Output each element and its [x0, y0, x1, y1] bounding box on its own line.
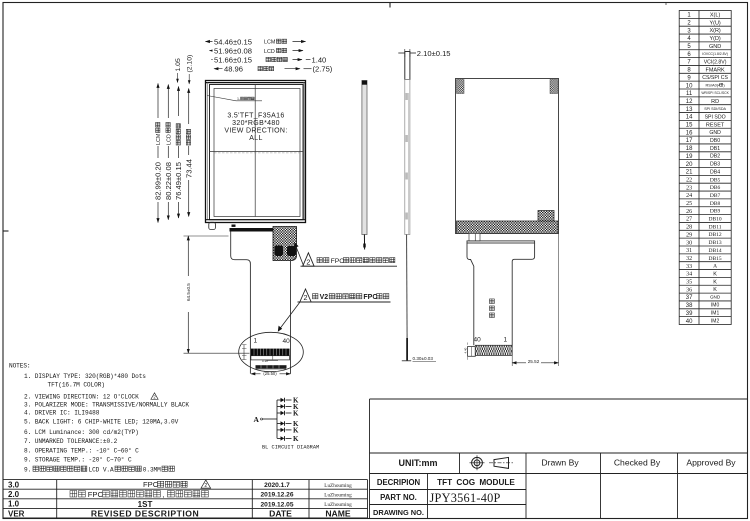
svg-text:X(L): X(L) — [710, 12, 721, 18]
svg-text:K: K — [713, 279, 717, 285]
svg-text:40: 40 — [474, 337, 482, 344]
svg-text:18: 18 — [686, 146, 693, 152]
svg-text:7. UNMARKED TOLERANCE:±0.2: 7. UNMARKED TOLERANCE:±0.2 — [24, 438, 118, 445]
svg-text:38: 38 — [686, 303, 693, 309]
svg-text:1. DISPLAY TYPE: 320(RGB)*48: 1. DISPLAY TYPE: 320(RGB)*480 Dots — [24, 373, 146, 380]
svg-text:V2: V2 — [320, 294, 329, 301]
svg-text:2019.12.05: 2019.12.05 — [260, 501, 293, 508]
svg-text:DB6: DB6 — [710, 185, 721, 191]
svg-text:24: 24 — [686, 193, 692, 199]
svg-text:GND: GND — [709, 130, 721, 136]
svg-text:30: 30 — [686, 240, 692, 246]
svg-text:28: 28 — [686, 225, 692, 231]
svg-text:1ST: 1ST — [138, 500, 153, 509]
svg-text:LCD: LCD — [264, 49, 275, 55]
svg-text:3.0: 3.0 — [8, 481, 20, 490]
svg-text:LCD V.A: LCD V.A — [89, 467, 115, 474]
svg-text:17: 17 — [686, 138, 693, 144]
svg-text:IM0: IM0 — [711, 303, 720, 309]
svg-text:DB3: DB3 — [710, 161, 720, 167]
svg-text:LCD: LCD — [166, 134, 172, 145]
svg-text:2.0: 2.0 — [8, 490, 20, 499]
svg-text:FPC: FPC — [143, 480, 159, 489]
svg-text:15: 15 — [686, 123, 693, 129]
svg-text:DB8: DB8 — [710, 201, 721, 207]
svg-text:14: 14 — [686, 115, 693, 121]
svg-text:Y(D): Y(D) — [709, 36, 720, 42]
svg-text:A: A — [254, 415, 260, 424]
svg-text:TFT COG MODULE: TFT COG MODULE — [437, 478, 515, 487]
svg-text:LCM: LCM — [264, 40, 276, 46]
svg-text:FPC: FPC — [363, 294, 377, 301]
svg-text:WR/SPI SCL/SCK: WR/SPI SCL/SCK — [701, 91, 729, 95]
svg-text:LCM: LCM — [156, 133, 162, 145]
svg-text:9.: 9. — [24, 467, 31, 474]
svg-text:25: 25 — [686, 201, 692, 207]
svg-text:UNIT:mm: UNIT:mm — [398, 458, 437, 468]
svg-text:20: 20 — [686, 162, 693, 168]
svg-text:SPI SDO: SPI SDO — [705, 114, 726, 120]
svg-text:NAME: NAME — [325, 509, 351, 519]
svg-text:31: 31 — [686, 248, 692, 254]
svg-text:2: 2 — [304, 293, 308, 302]
svg-text:22: 22 — [686, 177, 692, 183]
svg-text:51.96±0.08: 51.96±0.08 — [214, 46, 252, 55]
svg-text:27: 27 — [686, 217, 692, 223]
svg-text:Approved By: Approved By — [686, 458, 736, 468]
svg-text:IOVCC(1.8/2.8V): IOVCC(1.8/2.8V) — [702, 52, 728, 56]
svg-text:320*RGB*480: 320*RGB*480 — [232, 120, 280, 127]
svg-text:40: 40 — [283, 338, 291, 345]
svg-text:1.40: 1.40 — [312, 55, 327, 64]
svg-text:FMARK: FMARK — [705, 67, 725, 73]
svg-text:64.5±0.5: 64.5±0.5 — [186, 283, 191, 301]
svg-text:1.0: 1.0 — [8, 500, 20, 509]
svg-text:X(R): X(R) — [709, 28, 720, 34]
svg-text:12: 12 — [686, 99, 693, 105]
svg-text:FPC: FPC — [88, 490, 104, 499]
svg-text:4.40: 4.40 — [463, 347, 467, 353]
svg-text:DECRIPION: DECRIPION — [377, 478, 421, 487]
svg-text:DB2: DB2 — [710, 154, 720, 160]
svg-text:DB13: DB13 — [709, 240, 722, 246]
svg-text:Checked By: Checked By — [614, 458, 661, 468]
svg-text:40: 40 — [686, 319, 693, 325]
svg-text:21: 21 — [686, 170, 693, 176]
svg-text:DB1: DB1 — [710, 146, 720, 152]
svg-text:8. OPERATING TEMP.: -10° C~: 8. OPERATING TEMP.: -10° C~60° C — [24, 447, 139, 454]
svg-text:RS/A0(4: RS/A0(4 — [706, 82, 722, 87]
svg-text:3.5'TFT_F35A16: 3.5'TFT_F35A16 — [227, 113, 284, 120]
svg-text:11: 11 — [686, 91, 693, 97]
svg-text:DB11: DB11 — [709, 224, 722, 230]
svg-text:VIEW DRECTION:: VIEW DRECTION: — [224, 128, 287, 135]
svg-text:Y(U): Y(U) — [709, 20, 720, 26]
svg-text:FPC: FPC — [331, 258, 345, 265]
svg-text:LuZhouming: LuZhouming — [324, 502, 352, 508]
svg-text:BL CIRCUIT DIAGRAM: BL CIRCUIT DIAGRAM — [262, 445, 319, 451]
svg-text:DB0: DB0 — [710, 138, 720, 144]
svg-text:DB15: DB15 — [709, 256, 722, 262]
svg-text:K: K — [293, 410, 299, 418]
svg-text:13: 13 — [686, 107, 693, 113]
svg-text:NOTES:: NOTES: — [9, 363, 31, 370]
svg-text:23: 23 — [686, 185, 692, 191]
svg-text:6. LCM Luminance: 300 cd/m2(: 6. LCM Luminance: 300 cd/m2(TYP) — [24, 429, 139, 436]
svg-text:2: 2 — [204, 483, 207, 489]
svg-text:GND: GND — [710, 295, 721, 300]
svg-text:1: 1 — [504, 337, 508, 344]
svg-text:K: K — [713, 287, 717, 293]
svg-text:ALL: ALL — [249, 135, 263, 142]
svg-text:36: 36 — [686, 287, 692, 293]
svg-text:K: K — [293, 435, 299, 443]
svg-text:DATE: DATE — [269, 509, 292, 519]
svg-text:TFT(16.7M COLOR): TFT(16.7M COLOR) — [48, 381, 105, 388]
svg-text:2. VIEWING DIRECTION: 12 O'CL: 2. VIEWING DIRECTION: 12 O'CLOCK — [24, 394, 139, 401]
svg-text:26: 26 — [686, 209, 692, 215]
svg-text:39: 39 — [686, 311, 693, 317]
svg-text:K: K — [293, 427, 299, 435]
svg-text:35: 35 — [686, 280, 692, 286]
svg-text:2.10±0.15: 2.10±0.15 — [417, 49, 451, 58]
svg-text:SPI SDI/SDA: SPI SDI/SDA — [704, 107, 726, 111]
svg-text:19: 19 — [686, 154, 693, 160]
svg-text:2: 2 — [306, 257, 310, 266]
svg-text:10: 10 — [686, 83, 693, 89]
svg-text:48.96: 48.96 — [224, 65, 243, 74]
svg-text:REVISED DESCRIPTION: REVISED DESCRIPTION — [91, 509, 199, 519]
svg-text:(2.75): (2.75) — [313, 65, 333, 74]
svg-text:JPY3561-40P: JPY3561-40P — [430, 491, 501, 505]
svg-text:,: , — [162, 490, 164, 499]
svg-text:34: 34 — [686, 272, 692, 278]
svg-text:32: 32 — [686, 256, 692, 262]
svg-text:RD: RD — [711, 99, 719, 105]
svg-text:2019.12.26: 2019.12.26 — [260, 492, 293, 499]
svg-text:VER: VER — [8, 509, 25, 518]
svg-text:54.46±0.15: 54.46±0.15 — [214, 37, 252, 46]
svg-text:3. POLARIZER MODE: TRANSMISS: 3. POLARIZER MODE: TRANSMISSIVE/NORMALLY… — [24, 401, 189, 408]
svg-text:DB10: DB10 — [709, 217, 722, 223]
svg-text:CS/SPI CS: CS/SPI CS — [702, 75, 728, 81]
svg-text:IM1: IM1 — [711, 311, 720, 317]
svg-text:1.05: 1.05 — [175, 58, 182, 71]
svg-text:DB5: DB5 — [710, 177, 721, 183]
svg-text:73.44: 73.44 — [184, 159, 193, 178]
svg-text:A: A — [713, 264, 717, 270]
svg-text:9. STORAGE TEMP.: -20° C~70: 9. STORAGE TEMP.: -20° C~70° C — [24, 457, 132, 464]
svg-text:DB12: DB12 — [709, 232, 722, 238]
svg-text:2020.1.7: 2020.1.7 — [264, 482, 290, 489]
svg-text:80.22±0.08: 80.22±0.08 — [164, 162, 173, 200]
svg-text:K: K — [713, 271, 717, 277]
svg-text:DB7: DB7 — [710, 193, 721, 199]
svg-text:PART NO.: PART NO. — [380, 493, 417, 502]
svg-text:29: 29 — [686, 232, 692, 238]
svg-text:IM2: IM2 — [711, 318, 720, 324]
svg-text:LuZhouming: LuZhouming — [324, 492, 352, 498]
svg-text:25.52: 25.52 — [528, 359, 540, 364]
svg-text:4. DRIVER IC: ILI9488: 4. DRIVER IC: ILI9488 — [24, 410, 100, 417]
svg-text:37: 37 — [686, 295, 693, 301]
svg-text:LuZhouming: LuZhouming — [324, 483, 352, 489]
svg-text:DB4: DB4 — [710, 169, 720, 175]
svg-text:GND: GND — [709, 44, 721, 50]
svg-text:DB9: DB9 — [710, 209, 721, 215]
svg-text:DB14: DB14 — [709, 248, 722, 254]
svg-text:Drawn By: Drawn By — [541, 458, 579, 468]
svg-text:76.49±0.15: 76.49±0.15 — [174, 162, 183, 200]
svg-text:DRAWING NO.: DRAWING NO. — [373, 508, 424, 517]
svg-text:16: 16 — [686, 130, 693, 136]
svg-text:51.66±0.15: 51.66±0.15 — [214, 55, 252, 64]
svg-text:1: 1 — [254, 338, 258, 345]
svg-text:5. BACK LIGHT: 6 CHIP-WHITE: 5. BACK LIGHT: 6 CHIP-WHITE LED; 120MA,3… — [24, 418, 179, 425]
svg-text:RESET: RESET — [706, 122, 725, 128]
svg-text:33: 33 — [686, 264, 692, 270]
svg-text:VCI(2.8V): VCI(2.8V) — [704, 59, 727, 65]
svg-text:(2.10): (2.10) — [187, 55, 194, 73]
svg-text:0.30±0.03: 0.30±0.03 — [413, 356, 434, 361]
svg-text:0.3MM: 0.3MM — [143, 467, 161, 474]
svg-text:82.99±0.20: 82.99±0.20 — [154, 162, 163, 200]
